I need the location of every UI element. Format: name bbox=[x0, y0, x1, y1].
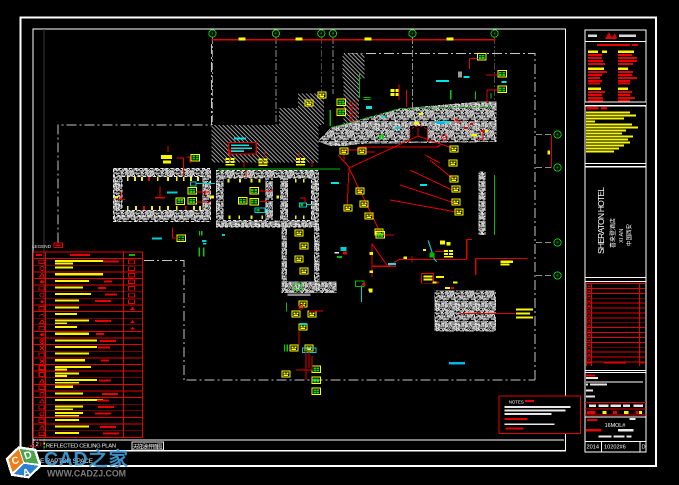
svg-text:16MOL#: 16MOL# bbox=[605, 423, 626, 429]
svg-text:喜来登酒店: 喜来登酒店 bbox=[609, 218, 617, 248]
svg-text:天花反射平面图: 天花反射平面图 bbox=[133, 442, 163, 450]
svg-text:CAD之家: CAD之家 bbox=[44, 448, 128, 471]
svg-text:中国西安: 中国西安 bbox=[625, 224, 633, 246]
svg-text:10202#6: 10202#6 bbox=[604, 445, 626, 451]
svg-text:SHERATON HOTEL: SHERATON HOTEL bbox=[596, 187, 606, 254]
svg-text:2: 2 bbox=[36, 442, 39, 448]
svg-text:LEGEND: LEGEND bbox=[32, 244, 52, 249]
svg-text:NOTES: NOTES bbox=[509, 399, 524, 404]
svg-text:D: D bbox=[642, 445, 646, 451]
svg-text:XI AN: XI AN bbox=[619, 229, 625, 243]
svg-text:2014: 2014 bbox=[587, 445, 599, 451]
svg-text:WWW.CADZJ.COM: WWW.CADZJ.COM bbox=[47, 469, 126, 479]
